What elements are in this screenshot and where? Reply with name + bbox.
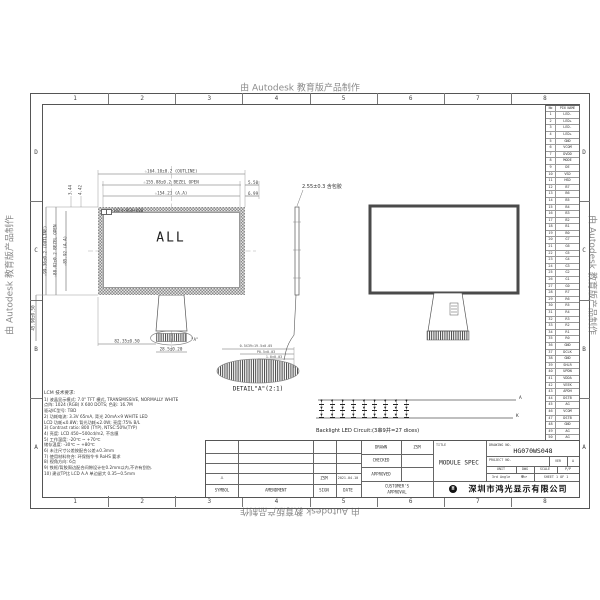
pin-name: R3 bbox=[556, 317, 579, 323]
dim-bezel-height: ☆88.02±0.2 BEZEL OPEN bbox=[53, 225, 58, 278]
led-diode-icon: ▼ bbox=[319, 413, 324, 419]
pin-name: VEEK bbox=[556, 383, 579, 389]
pin-name: B4 bbox=[556, 205, 579, 211]
pin-number: 2 bbox=[546, 119, 556, 125]
pin-row: 15B4 bbox=[546, 205, 579, 212]
rev-sign: ZSM bbox=[320, 476, 327, 481]
tblock-divider bbox=[433, 441, 434, 497]
pin-number: 36 bbox=[546, 343, 556, 349]
pin-number: 7 bbox=[546, 152, 556, 158]
pin-name: G6 bbox=[556, 244, 579, 250]
led-diode-icon: ▼ bbox=[383, 406, 388, 412]
pin-name: DCLK bbox=[556, 350, 579, 356]
tblock-divider bbox=[206, 473, 361, 474]
led-diode-icon: ▼ bbox=[330, 413, 335, 419]
led-diode-icon: ▼ bbox=[404, 399, 409, 405]
pin-row: 3LED- bbox=[546, 125, 579, 132]
tblock-divider bbox=[206, 453, 361, 454]
pin-row: 20G7 bbox=[546, 237, 579, 244]
pin-name: G7 bbox=[556, 237, 579, 243]
pin-number: 8 bbox=[546, 158, 556, 164]
pin-number: 43 bbox=[546, 389, 556, 395]
pin-row: 5GND bbox=[546, 139, 579, 146]
led-diode-icon: ▼ bbox=[362, 413, 367, 419]
led-diode-icon: ▼ bbox=[362, 399, 367, 405]
pin-number: 47 bbox=[546, 416, 556, 422]
pin-number: 37 bbox=[546, 350, 556, 356]
pin-row: 12B7 bbox=[546, 185, 579, 192]
pin-row: 2LED+ bbox=[546, 119, 579, 126]
pin-number: 5 bbox=[546, 139, 556, 145]
pin-row: 29R6 bbox=[546, 297, 579, 304]
led-diode-icon: ▼ bbox=[351, 399, 356, 405]
pin-row: 25G2 bbox=[546, 270, 579, 277]
scale-value: P/P bbox=[565, 467, 571, 471]
pin-number: 42 bbox=[546, 383, 556, 389]
pin-name: R1 bbox=[556, 330, 579, 336]
pin-name: R4 bbox=[556, 310, 579, 316]
led-anode-label: A bbox=[519, 396, 522, 401]
pin-name: VDDA bbox=[556, 376, 579, 382]
dim-outline-height: ☆99.36±0.2 (OUTLINE) bbox=[43, 226, 48, 276]
front-fpc bbox=[156, 295, 187, 331]
pin-name: LED+ bbox=[556, 119, 579, 125]
pin-row: 39SHLR bbox=[546, 363, 579, 370]
pin-row: 22G5 bbox=[546, 251, 579, 258]
pin-number: 39 bbox=[546, 363, 556, 369]
pin-number: 24 bbox=[546, 264, 556, 270]
pin-number: 41 bbox=[546, 376, 556, 382]
dim-aa-height: ☆85.92 (A.A) bbox=[63, 236, 68, 266]
title-label: TITLE bbox=[436, 443, 446, 447]
led-diode-icon: ▼ bbox=[383, 413, 388, 419]
detail-dim-3: 1.0±0.03 bbox=[266, 355, 282, 359]
leader-line bbox=[297, 190, 303, 206]
front-fpc-connector bbox=[157, 334, 187, 342]
unit-label: UNIT bbox=[497, 467, 505, 471]
pin-row: 14B5 bbox=[546, 198, 579, 205]
pin-name: DVDD bbox=[556, 152, 579, 158]
led-diode-icon: ▼ bbox=[330, 406, 335, 412]
pin-row: 19B0 bbox=[546, 231, 579, 238]
front-view-bezel bbox=[98, 207, 245, 295]
pin-number: 27 bbox=[546, 284, 556, 290]
sign-label: SIGN bbox=[319, 488, 329, 493]
pin-row: 30R5 bbox=[546, 303, 579, 310]
pin-row: 32R3 bbox=[546, 317, 579, 324]
detail-ref-label: "A" bbox=[191, 337, 199, 342]
pin-number: 18 bbox=[546, 224, 556, 230]
pin-number: 1 bbox=[546, 112, 556, 118]
pin-row: 26G1 bbox=[546, 277, 579, 284]
pin-row: 38GND bbox=[546, 356, 579, 363]
led-diode-icon: ▼ bbox=[340, 413, 345, 419]
pin-number: 46 bbox=[546, 409, 556, 415]
led-diode-icon: ▼ bbox=[340, 399, 345, 405]
pin-name: LED+ bbox=[556, 132, 579, 138]
pin-number: 34 bbox=[546, 330, 556, 336]
pin-number: 16 bbox=[546, 211, 556, 217]
pin-name: G1 bbox=[556, 277, 579, 283]
led-diode-icon: ▼ bbox=[404, 413, 409, 419]
pin-row: 11HSD bbox=[546, 178, 579, 185]
pin-row: 48GND bbox=[546, 422, 579, 429]
dim-right-bezel: 5.50 bbox=[248, 180, 258, 185]
tblock-divider bbox=[486, 441, 487, 481]
pin-number: 32 bbox=[546, 317, 556, 323]
dim-fpc-width: 28.5±0.20 bbox=[160, 347, 183, 352]
pin-name: AG bbox=[556, 402, 579, 408]
pin-row: 45AG bbox=[546, 402, 579, 409]
dim-fpc-drop: 45.90±0.50 bbox=[31, 305, 36, 330]
pin-row: 13B6 bbox=[546, 191, 579, 198]
pin-row: 43APDH bbox=[546, 389, 579, 396]
pin-row: 9DE bbox=[546, 165, 579, 172]
led-column: ▼▼▼ bbox=[340, 399, 345, 418]
ver-value: A bbox=[572, 459, 574, 463]
pin-number: 20 bbox=[546, 237, 556, 243]
pin-row: 21G6 bbox=[546, 244, 579, 251]
pin-name: VSD bbox=[556, 172, 579, 178]
pin-row: 16B3 bbox=[546, 211, 579, 218]
tblock-divider bbox=[313, 441, 314, 497]
led-column: ▼▼▼ bbox=[383, 399, 388, 418]
led-diode-icon: ▼ bbox=[362, 406, 367, 412]
tblock-divider bbox=[567, 456, 568, 466]
pin-number: 23 bbox=[546, 257, 556, 263]
tblock-divider bbox=[336, 441, 337, 497]
pin-number: 13 bbox=[546, 191, 556, 197]
third-angle-icon: ⊕▱ bbox=[521, 474, 527, 480]
sheet-label: SHEET 1 OF 1 bbox=[544, 475, 569, 479]
pin-name: G0 bbox=[556, 284, 579, 290]
dim-offset-1: 3.44 bbox=[68, 185, 73, 195]
pin-row: 49AG bbox=[546, 429, 579, 436]
pin-name: R6 bbox=[556, 297, 579, 303]
pin-row: 28R7 bbox=[546, 290, 579, 297]
pin-number: 45 bbox=[546, 402, 556, 408]
led-column: ▼▼▼ bbox=[330, 399, 335, 418]
pin-number: 9 bbox=[546, 165, 556, 171]
tblock-divider bbox=[486, 456, 579, 457]
title-value: MODULE SPEC bbox=[439, 460, 479, 467]
tblock-divider bbox=[361, 441, 362, 497]
pin-row: 4LED+ bbox=[546, 132, 579, 139]
pin-name: SHLR bbox=[556, 363, 579, 369]
scale-label: SCALE bbox=[540, 467, 550, 471]
dim-outline-width: ☆164.10±0.2 (OUTLINE) bbox=[145, 169, 198, 174]
pin-number: 22 bbox=[546, 251, 556, 257]
pin-row: 34R1 bbox=[546, 330, 579, 337]
led-diode-icon: ▼ bbox=[319, 406, 324, 412]
led-diode-icon: ▼ bbox=[393, 399, 398, 405]
pin-name: GND bbox=[556, 356, 579, 362]
dim-offset-2: 4.42 bbox=[78, 185, 83, 195]
pin-row: 24G3 bbox=[546, 264, 579, 271]
pin-row: 31R4 bbox=[546, 310, 579, 317]
led-diode-icon: ▼ bbox=[372, 406, 377, 412]
led-cathode-label: K bbox=[516, 414, 519, 419]
pin-row: 17B2 bbox=[546, 218, 579, 225]
pin-name: DSTB bbox=[556, 396, 579, 402]
pin-name: R5 bbox=[556, 303, 579, 309]
notes-lines: 1) 液晶显示模式: 7.0" TFT 横式, TRANSMISSIVE, NO… bbox=[44, 397, 206, 477]
symbol-label: SYMBOL bbox=[215, 488, 229, 493]
pin-number: 3 bbox=[546, 125, 556, 131]
pin-name: DE bbox=[556, 165, 579, 171]
rear-view bbox=[370, 206, 518, 293]
detail-dim-2: P0.5±0.03 bbox=[257, 350, 275, 354]
technical-notes: LCM 技术要求: 1) 液晶显示模式: 7.0" TFT 横式, TRANSM… bbox=[44, 391, 206, 477]
pin-row: 36GND bbox=[546, 343, 579, 350]
pin-name: B3 bbox=[556, 211, 579, 217]
led-column: ▼▼▼ bbox=[362, 399, 367, 418]
pin-number: 49 bbox=[546, 429, 556, 435]
pin-number: 14 bbox=[546, 198, 556, 204]
resolution-label: 1024×RGB×600 bbox=[113, 208, 143, 213]
led-circuit-grid: ▼▼▼▼▼▼▼▼▼▼▼▼▼▼▼▼▼▼▼▼▼▼▼▼▼▼▼ bbox=[319, 399, 409, 418]
pin-row: 35R0 bbox=[546, 336, 579, 343]
pin-number: 33 bbox=[546, 323, 556, 329]
tblock-divider bbox=[238, 441, 239, 497]
led-diode-icon: ▼ bbox=[372, 399, 377, 405]
tblock-divider bbox=[557, 466, 558, 473]
detail-a-pins bbox=[216, 358, 300, 384]
pin-table: No PIN NAME 1LED-2LED+3LED-4LED+5GND6VCO… bbox=[545, 105, 580, 443]
pin-number: 10 bbox=[546, 172, 556, 178]
detail-dim-1: 0.5X39=19.5±0.05 bbox=[240, 344, 273, 348]
pin-row: 7DVDD bbox=[546, 152, 579, 159]
pin-number: 40 bbox=[546, 369, 556, 375]
pin-name: R0 bbox=[556, 336, 579, 342]
drawn-label: DRAWN bbox=[375, 445, 387, 450]
checked-label: CHECKED bbox=[373, 458, 390, 463]
company-logo-icon: H bbox=[449, 485, 457, 493]
rear-fpc-connector bbox=[427, 331, 469, 340]
pin-number: 44 bbox=[546, 396, 556, 402]
project-no-label: PROJECT NO. bbox=[489, 458, 511, 462]
drawing-no-value: HG070WS048 bbox=[513, 447, 552, 455]
rear-fpc bbox=[428, 293, 468, 331]
pixel-marker bbox=[106, 209, 112, 215]
led-diode-icon: ▼ bbox=[351, 413, 356, 419]
pin-number: 38 bbox=[546, 356, 556, 362]
rev-symbol: △ bbox=[221, 476, 224, 481]
led-diode-icon: ▼ bbox=[393, 406, 398, 412]
led-diode-icon: ▼ bbox=[319, 399, 324, 405]
pin-name: B6 bbox=[556, 191, 579, 197]
pin-table-rows: 1LED-2LED+3LED-4LED+5GND6VCOM7DVDD8MODE9… bbox=[546, 112, 579, 442]
pin-name: B7 bbox=[556, 185, 579, 191]
pin-row: 8MODE bbox=[546, 158, 579, 165]
dim-right-aa: 6.99 bbox=[248, 191, 258, 196]
pin-row: 10VSD bbox=[546, 172, 579, 179]
pin-name: GND bbox=[556, 139, 579, 145]
amendment-label: AMENDMENT bbox=[265, 488, 287, 493]
pin-header-name: PIN NAME bbox=[556, 106, 579, 111]
tblock-divider bbox=[401, 441, 402, 481]
led-diode-icon: ▼ bbox=[404, 406, 409, 412]
customer-approval-label-2: APPROVAL bbox=[387, 490, 406, 495]
pin-name: VCOM bbox=[556, 409, 579, 415]
pin-number: 19 bbox=[546, 231, 556, 237]
company-name: 深圳市鸿光显示有限公司 bbox=[469, 484, 568, 495]
led-diode-icon: ▼ bbox=[372, 413, 377, 419]
tblock-divider bbox=[516, 466, 517, 473]
led-circuit-caption: Backlight LED Circuit:(3串9并=27 dices) bbox=[316, 427, 419, 434]
pin-name: VCOM bbox=[556, 145, 579, 151]
pin-name: HSD bbox=[556, 178, 579, 184]
pin-row: 1LED- bbox=[546, 112, 579, 119]
drawing-no-label: DRAWING NO. bbox=[489, 443, 511, 447]
pin-name: R7 bbox=[556, 290, 579, 296]
pin-row: 47DSTB bbox=[546, 416, 579, 423]
pin-number: 31 bbox=[546, 310, 556, 316]
tblock-divider bbox=[206, 484, 361, 485]
pin-row: 46VCOM bbox=[546, 409, 579, 416]
thickness-label: 2.55±0.3 含包胶 bbox=[302, 183, 342, 190]
detail-a-label: DETAIL"A"(2:1) bbox=[233, 386, 284, 393]
linework-layer bbox=[0, 0, 600, 600]
title-block: △ ZSM 2021.04.10 SYMBOL AMENDMENT SIGN D… bbox=[205, 440, 580, 498]
pin-number: 17 bbox=[546, 218, 556, 224]
pin-number: 48 bbox=[546, 422, 556, 428]
led-column: ▼▼▼ bbox=[393, 399, 398, 418]
pin-row: 33R2 bbox=[546, 323, 579, 330]
pin-number: 11 bbox=[546, 178, 556, 184]
drawing-sheet: 由 Autodesk 教育版产品制作 由 Autodesk 教育版产品制作 由 … bbox=[0, 0, 600, 600]
tblock-divider bbox=[486, 473, 579, 474]
unit-value: DWG bbox=[522, 467, 528, 471]
dim-aa-width: ☆154.21 (A.A) bbox=[155, 191, 188, 196]
panel-center-label: ALL bbox=[156, 231, 185, 246]
pin-name: GND bbox=[556, 343, 579, 349]
led-column: ▼▼▼ bbox=[404, 399, 409, 418]
pin-row: 18B1 bbox=[546, 224, 579, 231]
date-label: DATE bbox=[343, 488, 353, 493]
led-diode-icon: ▼ bbox=[330, 399, 335, 405]
pin-row: 27G0 bbox=[546, 284, 579, 291]
pin-name: B5 bbox=[556, 198, 579, 204]
pin-name: G4 bbox=[556, 257, 579, 263]
led-diode-icon: ▼ bbox=[340, 406, 345, 412]
pin-number: 30 bbox=[546, 303, 556, 309]
note-line: 10) 建议TP比 LCD A.A 单边留大 0.35~0.5mm bbox=[44, 471, 206, 477]
ver-label: VER bbox=[555, 459, 561, 463]
led-column: ▼▼▼ bbox=[319, 399, 324, 418]
pin-number: 12 bbox=[546, 185, 556, 191]
pin-number: 6 bbox=[546, 145, 556, 151]
tblock-divider bbox=[549, 456, 550, 466]
tblock-divider bbox=[361, 454, 433, 455]
rev-date: 2021.04.10 bbox=[338, 476, 358, 480]
dim-bezel-width: ☆155.88±0.2 BEZEL OPEN bbox=[143, 180, 198, 185]
side-view-profile bbox=[295, 207, 299, 295]
pin-name: AG bbox=[556, 429, 579, 435]
pin-row: 42VEEK bbox=[546, 383, 579, 390]
pin-name: B2 bbox=[556, 218, 579, 224]
pin-number: 29 bbox=[546, 297, 556, 303]
pin-number: 25 bbox=[546, 270, 556, 276]
pin-name: G3 bbox=[556, 264, 579, 270]
tblock-divider bbox=[361, 481, 579, 482]
pin-row: 44DSTB bbox=[546, 396, 579, 403]
pin-row: 37DCLK bbox=[546, 350, 579, 357]
pin-name: GND bbox=[556, 422, 579, 428]
pin-row: 23G4 bbox=[546, 257, 579, 264]
led-column: ▼▼▼ bbox=[372, 399, 377, 418]
led-diode-icon: ▼ bbox=[383, 399, 388, 405]
pin-row: 6VCOM bbox=[546, 145, 579, 152]
led-column: ▼▼▼ bbox=[351, 399, 356, 418]
pin-name: G5 bbox=[556, 251, 579, 257]
approved-label: APPROVED bbox=[371, 472, 390, 477]
customer-approval-label-1: CUSTOMER'S bbox=[385, 484, 409, 489]
led-diode-icon: ▼ bbox=[351, 406, 356, 412]
pin-name: APDH bbox=[556, 389, 579, 395]
led-diode-icon: ▼ bbox=[393, 413, 398, 419]
third-angle-label: 3rd Angle bbox=[492, 475, 510, 479]
pin-number: 15 bbox=[546, 205, 556, 211]
pin-number: 28 bbox=[546, 290, 556, 296]
pin-row: 41VDDA bbox=[546, 376, 579, 383]
pin-number: 26 bbox=[546, 277, 556, 283]
pin-name: DSTB bbox=[556, 416, 579, 422]
tblock-divider bbox=[206, 463, 361, 464]
pin-name: B0 bbox=[556, 231, 579, 237]
pin-name: UPDN bbox=[556, 369, 579, 375]
drawn-value: ZSM bbox=[413, 445, 420, 450]
pin-header-no: No bbox=[546, 106, 556, 111]
pin-name: LED- bbox=[556, 125, 579, 131]
pin-name: G2 bbox=[556, 270, 579, 276]
active-area bbox=[103, 212, 240, 288]
pin-name: LED- bbox=[556, 112, 579, 118]
pin-name: MODE bbox=[556, 158, 579, 164]
pin-name: B1 bbox=[556, 224, 579, 230]
dim-fpc-x: 82.35±0.50 bbox=[114, 339, 139, 344]
pin-name: R2 bbox=[556, 323, 579, 329]
pin-row: 40UPDN bbox=[546, 369, 579, 376]
pin-number: 21 bbox=[546, 244, 556, 250]
pin-number: 4 bbox=[546, 132, 556, 138]
pin-number: 35 bbox=[546, 336, 556, 342]
tblock-divider bbox=[361, 467, 433, 468]
